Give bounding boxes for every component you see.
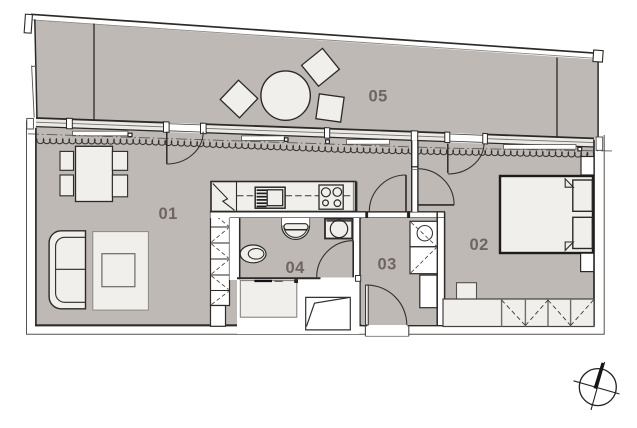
svg-text:03: 03 xyxy=(378,256,397,274)
svg-text:02: 02 xyxy=(470,236,489,254)
svg-text:04: 04 xyxy=(286,259,306,277)
svg-text:05: 05 xyxy=(369,88,388,106)
svg-text:01: 01 xyxy=(159,205,178,223)
